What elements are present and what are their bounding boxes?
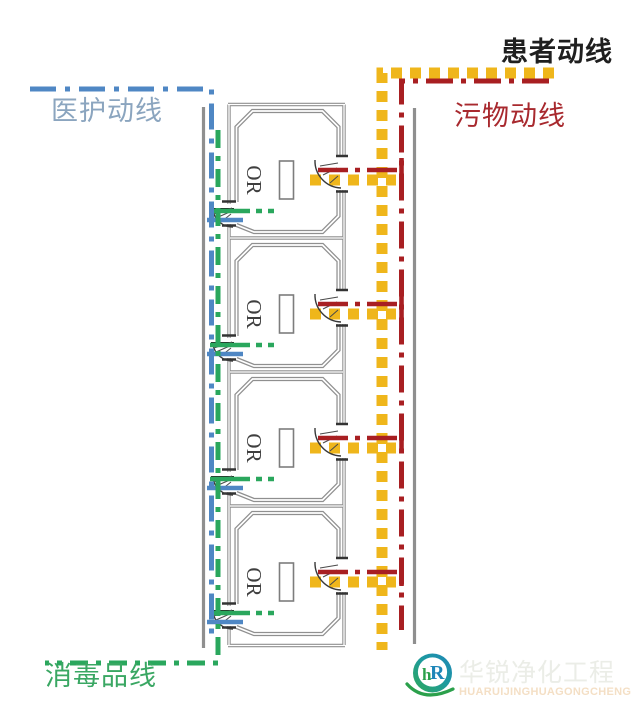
disinfectant-flow-label: 消毒品线 — [45, 661, 157, 691]
room-label: OR — [242, 165, 266, 194]
staff-flow-label: 医护动线 — [51, 96, 163, 126]
room-label: OR — [242, 299, 266, 328]
or-suite-flow-diagram: OR OR OR OR 患者动线 医护动线 污物动线 消毒品线 h R 华锐净化… — [0, 0, 638, 722]
diagram-canvas: OR OR OR OR 患者动线 医护动线 污物动线 消毒品线 h R 华锐净化… — [0, 0, 638, 722]
watermark-en: HUARUIJINGHUAGONGCHENG — [459, 686, 631, 698]
logo-monogram-r: R — [430, 662, 445, 684]
room-label: OR — [242, 433, 266, 462]
watermark-cn: 华锐净化工程 — [459, 659, 615, 687]
waste-flow-label: 污物动线 — [454, 101, 566, 131]
room-label: OR — [242, 567, 266, 596]
patient-flow-label: 患者动线 — [501, 37, 613, 67]
